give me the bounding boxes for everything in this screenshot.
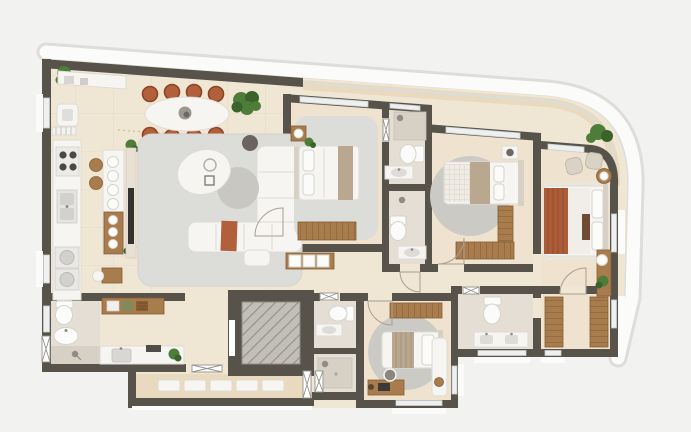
wall-masterbath-top-a	[451, 286, 462, 294]
wall-master-left-a	[533, 133, 541, 254]
double-bed	[544, 184, 608, 258]
bed-bench	[582, 214, 590, 240]
bench-unit	[236, 380, 258, 391]
elevator-shaft	[242, 302, 300, 364]
dining-chair	[143, 87, 158, 102]
wall-bath-divider	[382, 184, 432, 191]
stool	[597, 255, 608, 266]
window-masterbath	[478, 351, 526, 356]
door-hall	[192, 365, 222, 372]
desk-chair	[384, 369, 396, 381]
toilet	[484, 297, 502, 324]
dark-appliance	[146, 345, 161, 352]
window-right-lower	[612, 300, 617, 328]
green-box	[122, 301, 133, 311]
writing-desk	[93, 268, 123, 283]
island-counter	[103, 150, 124, 256]
wall-masterbath-top-b	[480, 286, 541, 294]
pillow	[303, 150, 314, 171]
pillow	[592, 190, 603, 218]
wall-bath-left-b	[382, 142, 389, 272]
headboard	[518, 160, 524, 206]
window-seat-bench	[432, 338, 447, 396]
bench-unit	[184, 380, 206, 391]
wardrobe-vertical	[498, 206, 513, 244]
wash-basin-bowl	[62, 109, 73, 121]
elevator-door	[229, 320, 235, 356]
shower-head-icon	[397, 115, 403, 121]
wall-baths-bottom-c	[464, 264, 533, 272]
plate	[109, 240, 118, 249]
desk-pot	[368, 384, 374, 390]
window-bedroom3-bottom	[396, 401, 442, 406]
window-right-upper	[612, 214, 617, 252]
pillow	[494, 184, 504, 200]
pillow	[592, 222, 603, 250]
wardrobe-unit	[545, 297, 563, 347]
wall-baths-bottom-a	[382, 264, 400, 272]
plate	[109, 216, 118, 225]
window-closet	[545, 351, 561, 356]
vanity-sink	[398, 246, 426, 259]
side-table-top	[600, 172, 608, 180]
dryer	[55, 269, 79, 290]
sink-basin	[505, 335, 518, 344]
dining-chair	[209, 87, 224, 102]
bench-unit	[210, 380, 232, 391]
wall-main-horizontal-d	[392, 293, 458, 301]
pillow	[303, 174, 314, 195]
wall-bath-left-a	[382, 105, 389, 118]
wall-corridor-bottom	[128, 398, 314, 406]
plate	[108, 157, 119, 168]
toilet	[400, 145, 424, 164]
common-corridor	[158, 380, 284, 391]
shoe-cubby	[303, 255, 315, 267]
washer	[55, 247, 79, 268]
laundry-sink	[112, 349, 131, 362]
pillow	[494, 166, 504, 182]
wall-shelf	[102, 298, 164, 314]
wardrobe-horizontal	[456, 242, 514, 259]
bench-decor	[435, 378, 444, 387]
shower-head-icon	[322, 361, 328, 367]
centerpiece-bowl-inner	[184, 112, 190, 118]
shoe-cubby	[317, 255, 329, 267]
door-corridor-b	[315, 371, 323, 392]
window-left-kitchen	[44, 255, 50, 283]
desk-chair	[93, 271, 104, 282]
laptop	[378, 383, 390, 391]
wardrobe-unit	[590, 297, 608, 347]
wall-service-divider	[314, 348, 356, 354]
shoe-cubbies	[286, 253, 334, 269]
door-service-bath	[320, 293, 338, 300]
door-masterbath	[463, 287, 479, 294]
bench-unit	[158, 380, 180, 391]
door-powder-bath	[42, 336, 50, 362]
wall-master-left-c	[533, 318, 541, 356]
wardrobe	[390, 303, 442, 318]
wall-bottom-left	[42, 364, 104, 372]
bed-runner	[470, 162, 490, 204]
ball-lamp	[294, 129, 303, 138]
armchair	[585, 152, 604, 171]
shoe-cubby	[289, 255, 301, 267]
terracotta-throw	[220, 221, 237, 252]
headboard	[294, 147, 299, 199]
nightstand	[502, 146, 518, 159]
drain	[334, 372, 337, 375]
white-box	[107, 301, 119, 311]
vanity-sink	[385, 166, 413, 179]
bed-runner	[338, 146, 353, 200]
toilet	[390, 216, 406, 241]
sink-basin	[480, 335, 493, 344]
ottoman	[244, 250, 270, 266]
double-bed	[294, 146, 359, 200]
apartment-floor-plan	[0, 0, 691, 432]
bench-unit	[262, 380, 284, 391]
window-bedroom3-right	[452, 366, 457, 394]
shower-head-icon	[399, 197, 405, 203]
toilet	[56, 301, 74, 325]
tv-partition	[126, 148, 136, 258]
double-bed	[444, 160, 524, 206]
laundry-counter	[100, 345, 184, 364]
window-left-top	[44, 98, 50, 128]
wall-bedroom3-left	[356, 293, 364, 408]
cooktop	[56, 147, 79, 176]
wall-master-bottom-a	[541, 286, 560, 294]
toilet	[329, 306, 354, 321]
louver-grille	[52, 127, 76, 135]
double-vanity	[474, 332, 528, 347]
door-corridor-a	[303, 371, 311, 398]
wall-service-bottom	[312, 392, 358, 400]
headboard	[603, 184, 608, 258]
wardrobe-sideboard	[298, 222, 356, 240]
dark-side-table	[242, 135, 258, 151]
sink-faucet	[65, 329, 68, 332]
plate	[109, 228, 118, 237]
plate	[108, 171, 119, 182]
plate	[108, 185, 119, 196]
wall-laundry-bottom	[104, 364, 186, 372]
floor-plan-stage	[0, 0, 691, 432]
wall-baths-bottom-b	[420, 264, 438, 272]
vanity-sink	[316, 324, 342, 336]
small-appliance	[80, 78, 88, 85]
small-appliance	[64, 76, 74, 84]
bar-stool	[90, 177, 103, 190]
waffle-blanket	[444, 164, 470, 202]
tv-panel	[128, 188, 134, 244]
plate	[108, 199, 119, 210]
door-bathroom1	[383, 119, 389, 141]
double-sink	[57, 190, 77, 223]
bar-stool	[90, 159, 103, 172]
window-left-bath	[44, 306, 50, 332]
